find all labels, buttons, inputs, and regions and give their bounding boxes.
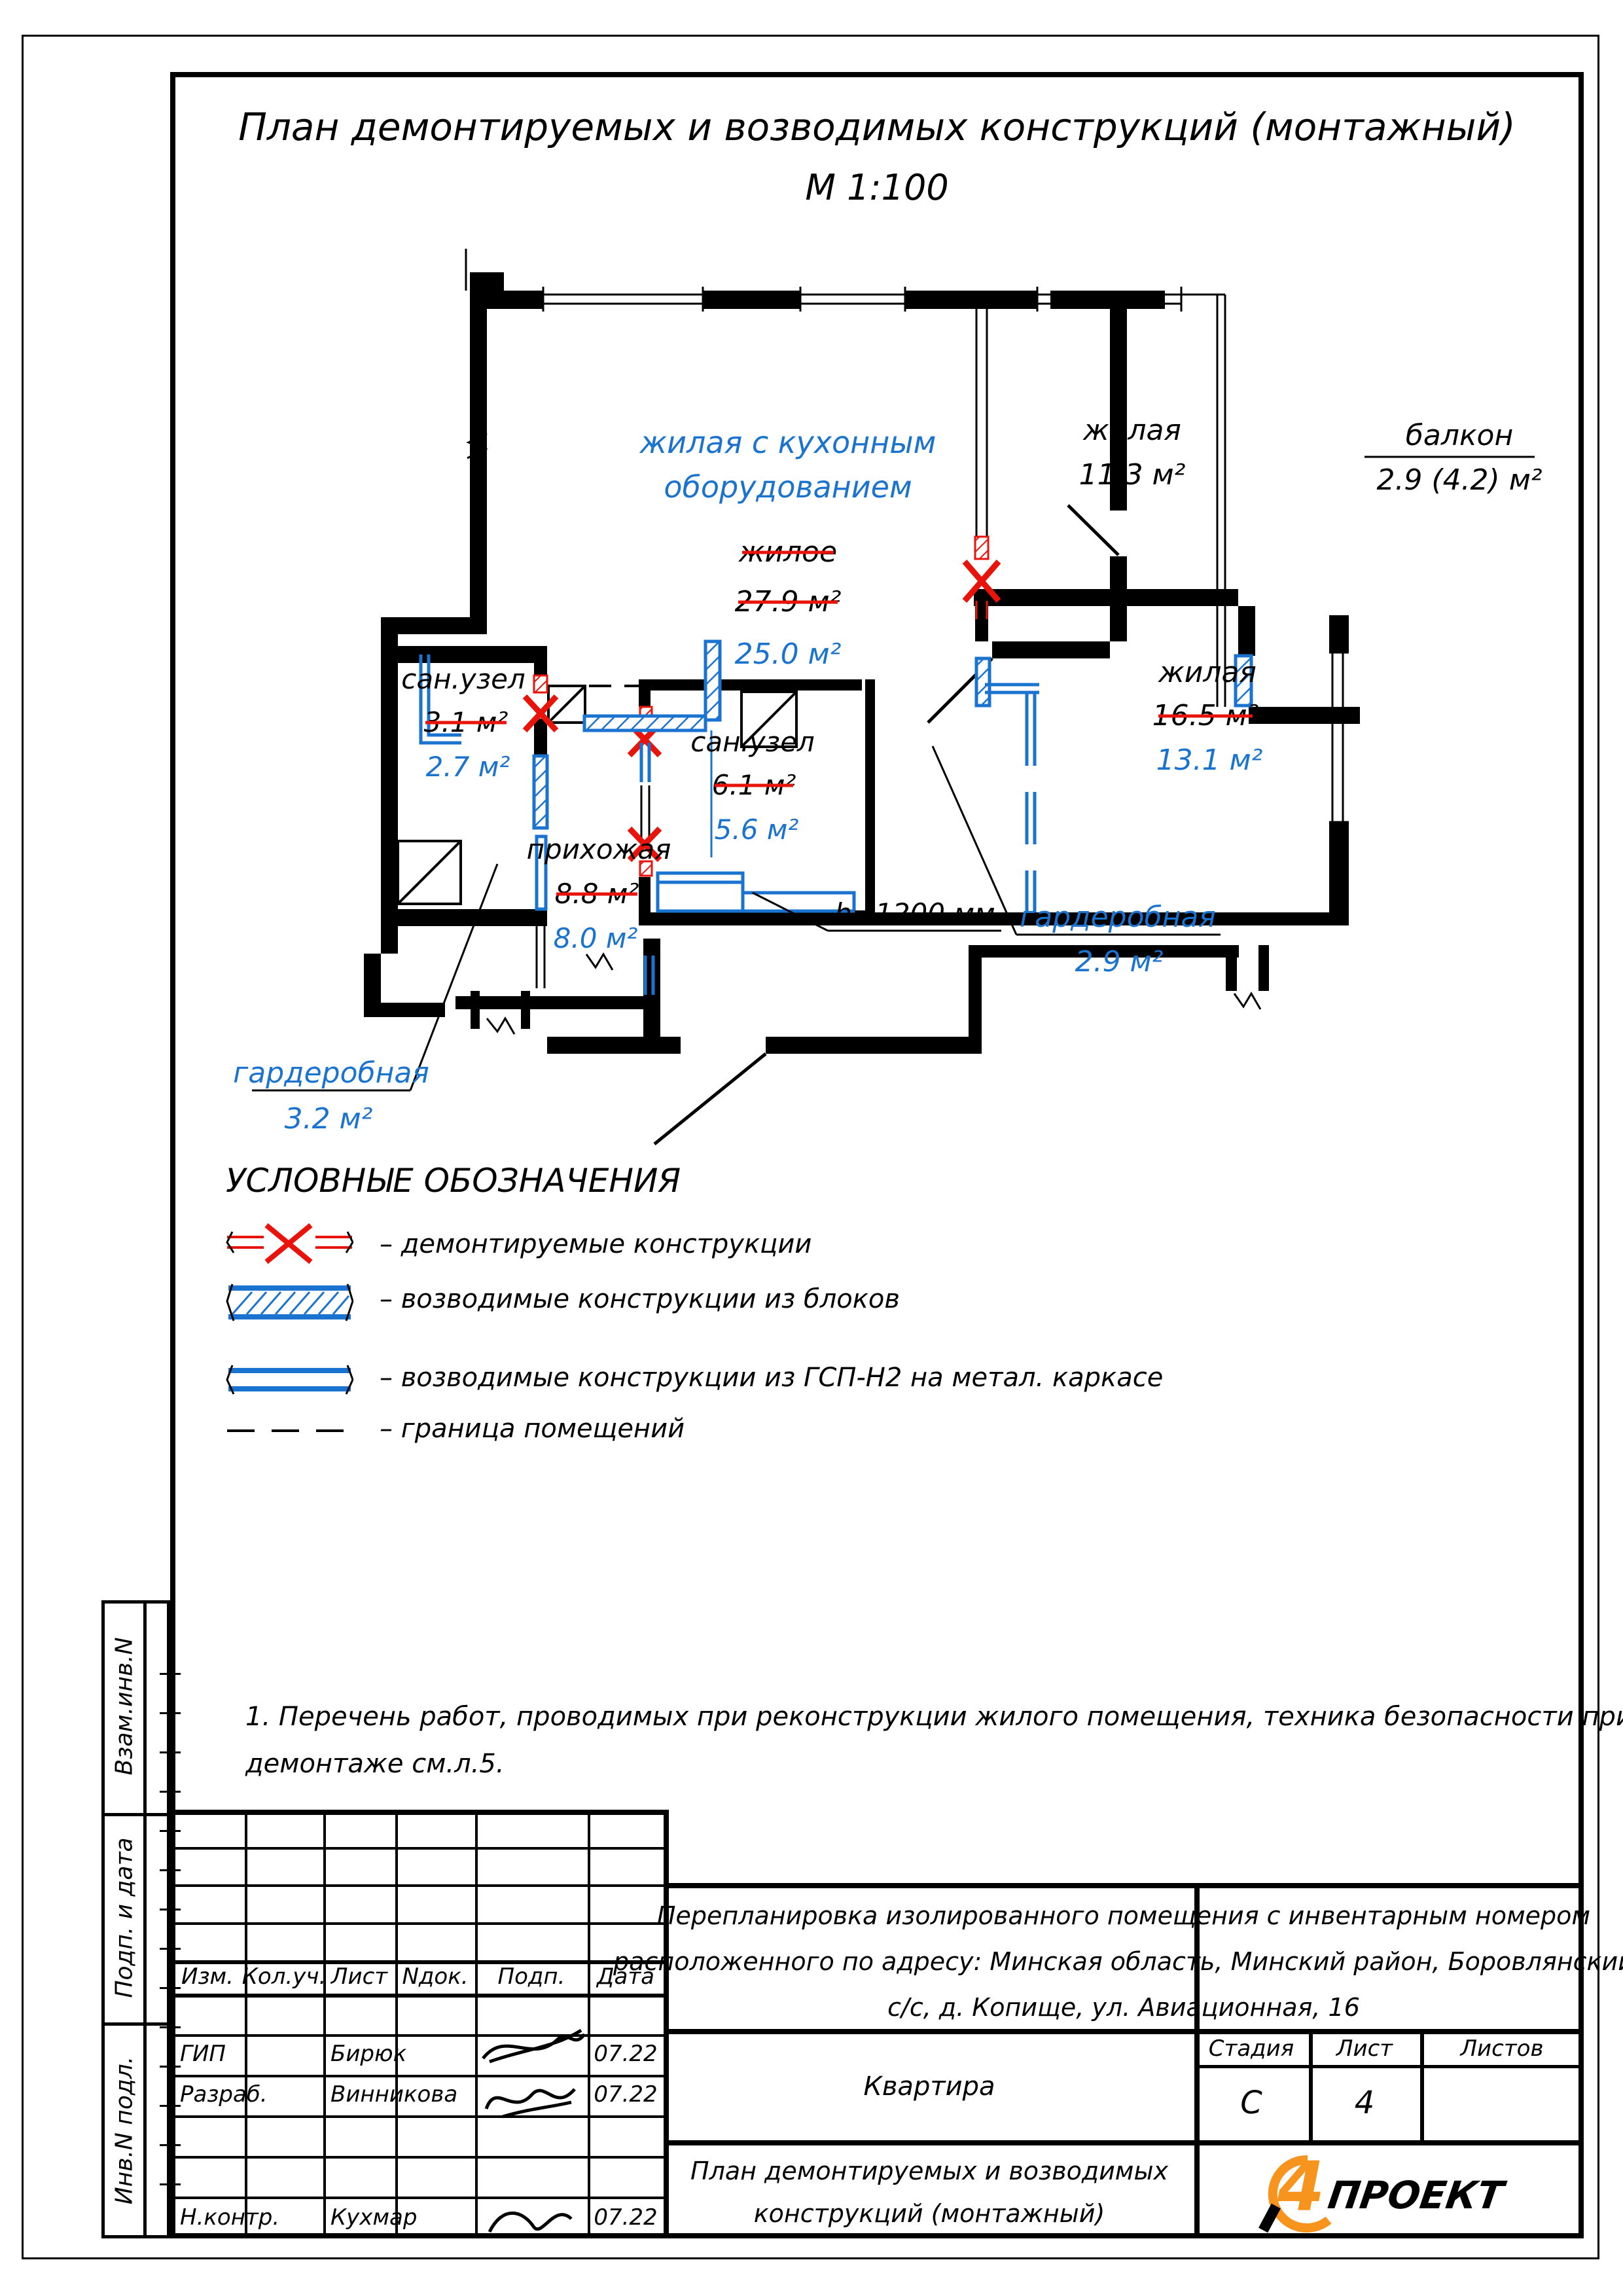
- note-line2: демонтаже см.л.5.: [245, 1749, 505, 1779]
- legend-symbol-boundary: [226, 1424, 353, 1437]
- col-podp: Подп.: [498, 1964, 565, 1990]
- svg-text:жилая: жилая: [1082, 414, 1181, 447]
- svg-text:гардеробная: гардеробная: [233, 1056, 429, 1090]
- row-razrab-date: 07.22: [594, 2081, 657, 2108]
- sheet-label: Лист: [1336, 2036, 1393, 2062]
- sidebar-label-inv: Инв.N подл.: [111, 2056, 138, 2204]
- company-logo: 4 ПРОЕКТ: [1230, 2148, 1558, 2233]
- logo-word: ПРОЕКТ: [1325, 2173, 1509, 2217]
- row-gip-role: ГИП: [180, 2041, 226, 2067]
- col-izm: Изм.: [181, 1964, 234, 1990]
- stage-label: Стадия: [1209, 2036, 1294, 2062]
- legend-label-boundary: – граница помещений: [380, 1414, 685, 1444]
- svg-text:прихожая: прихожая: [527, 833, 671, 865]
- svg-text:сан.узел: сан.узел: [401, 663, 526, 695]
- legend-heading: УСЛОВНЫЕ ОБОЗНАЧЕНИЯ: [226, 1162, 681, 1200]
- legend-label-blocks: – возводимые конструкции из блоков: [380, 1284, 900, 1314]
- svg-text:сан.узел: сан.узел: [690, 726, 815, 758]
- col-ndok: Nдок.: [402, 1964, 468, 1990]
- svg-text:2.9 м²: 2.9 м²: [1075, 945, 1164, 978]
- floor-plan: жилая с кухонным оборудованием жилое 27.…: [223, 249, 1544, 1165]
- room-labels: жилая с кухонным оборудованием жилое 27.…: [233, 414, 1542, 1136]
- row-nkontr-role: Н.контр.: [180, 2204, 279, 2231]
- svg-text:5.6 м²: 5.6 м²: [715, 814, 799, 846]
- svg-text:8.0 м²: 8.0 м²: [554, 922, 638, 954]
- svg-text:3.2 м²: 3.2 м²: [285, 1102, 373, 1136]
- logo-digit: 4: [1277, 2148, 1325, 2227]
- stage-value: С: [1240, 2085, 1262, 2121]
- legend-label-demolished: – демонтируемые конструкции: [380, 1229, 811, 1259]
- sheet-value: 4: [1355, 2085, 1375, 2121]
- svg-text:11.3 м²: 11.3 м²: [1079, 458, 1186, 492]
- signature-razrab: [476, 2076, 588, 2122]
- project-line1: Перепланировка изолированного помещения …: [657, 1901, 1590, 1930]
- note-line1: 1. Перечень работ, проводимых при реконс…: [245, 1702, 1623, 1732]
- col-koluch: Кол.уч.: [242, 1964, 327, 1990]
- legend-label-gsp: – возводимые конструкции из ГСП-Н2 на ме…: [380, 1363, 1163, 1393]
- svg-text:25.0 м²: 25.0 м²: [735, 637, 842, 671]
- svg-text:оборудованием: оборудованием: [664, 469, 912, 505]
- drawing-sheet: План демонтируемых и возводимых конструк…: [0, 0, 1623, 2296]
- signature-nkontr: [476, 2198, 588, 2238]
- signature-gip: [476, 2022, 588, 2072]
- svg-text:балкон: балкон: [1406, 419, 1513, 452]
- project-line3: с/с, д. Копище, ул. Авиационная, 16: [887, 1993, 1360, 2022]
- svg-text:жилая: жилая: [1158, 656, 1257, 689]
- sidebar-label-vzam: Взам.инв.N: [111, 1637, 138, 1775]
- project-line2: расположенного по адресу: Минская област…: [613, 1947, 1623, 1976]
- page-title: План демонтируемых и возводимых конструк…: [238, 105, 1516, 149]
- row-gip-name: Бирюк: [330, 2041, 406, 2067]
- svg-text:2.9 (4.2) м²: 2.9 (4.2) м²: [1376, 463, 1542, 497]
- doc-title-line2: конструкций (монтажный): [754, 2199, 1105, 2228]
- row-nkontr-name: Кухмар: [330, 2204, 417, 2231]
- svg-text:гардеробная: гардеробная: [1020, 901, 1216, 934]
- page-scale: М 1:100: [805, 167, 948, 208]
- sheets-label: Листов: [1460, 2036, 1543, 2062]
- row-razrab-role: Разраб.: [180, 2081, 268, 2108]
- legend-symbol-blocks: [226, 1282, 353, 1323]
- svg-text:жилая с кухонным: жилая с кухонным: [639, 425, 936, 460]
- legend-symbol-demolished: [226, 1219, 353, 1279]
- svg-text:h=1200 мм: h=1200 мм: [834, 897, 995, 929]
- row-nkontr-date: 07.22: [594, 2204, 657, 2231]
- doc-title-line1: План демонтируемых и возводимых: [690, 2157, 1168, 2185]
- col-list: Лист: [331, 1964, 387, 1990]
- svg-text:2.7 м²: 2.7 м²: [426, 751, 510, 783]
- object-name: Квартира: [863, 2072, 995, 2102]
- row-gip-date: 07.22: [594, 2041, 657, 2067]
- row-razrab-name: Винникова: [330, 2081, 457, 2108]
- legend-symbol-gsp: [226, 1364, 353, 1395]
- svg-text:13.1 м²: 13.1 м²: [1156, 744, 1263, 777]
- sidebar-label-podp: Подп. и дата: [111, 1837, 138, 1998]
